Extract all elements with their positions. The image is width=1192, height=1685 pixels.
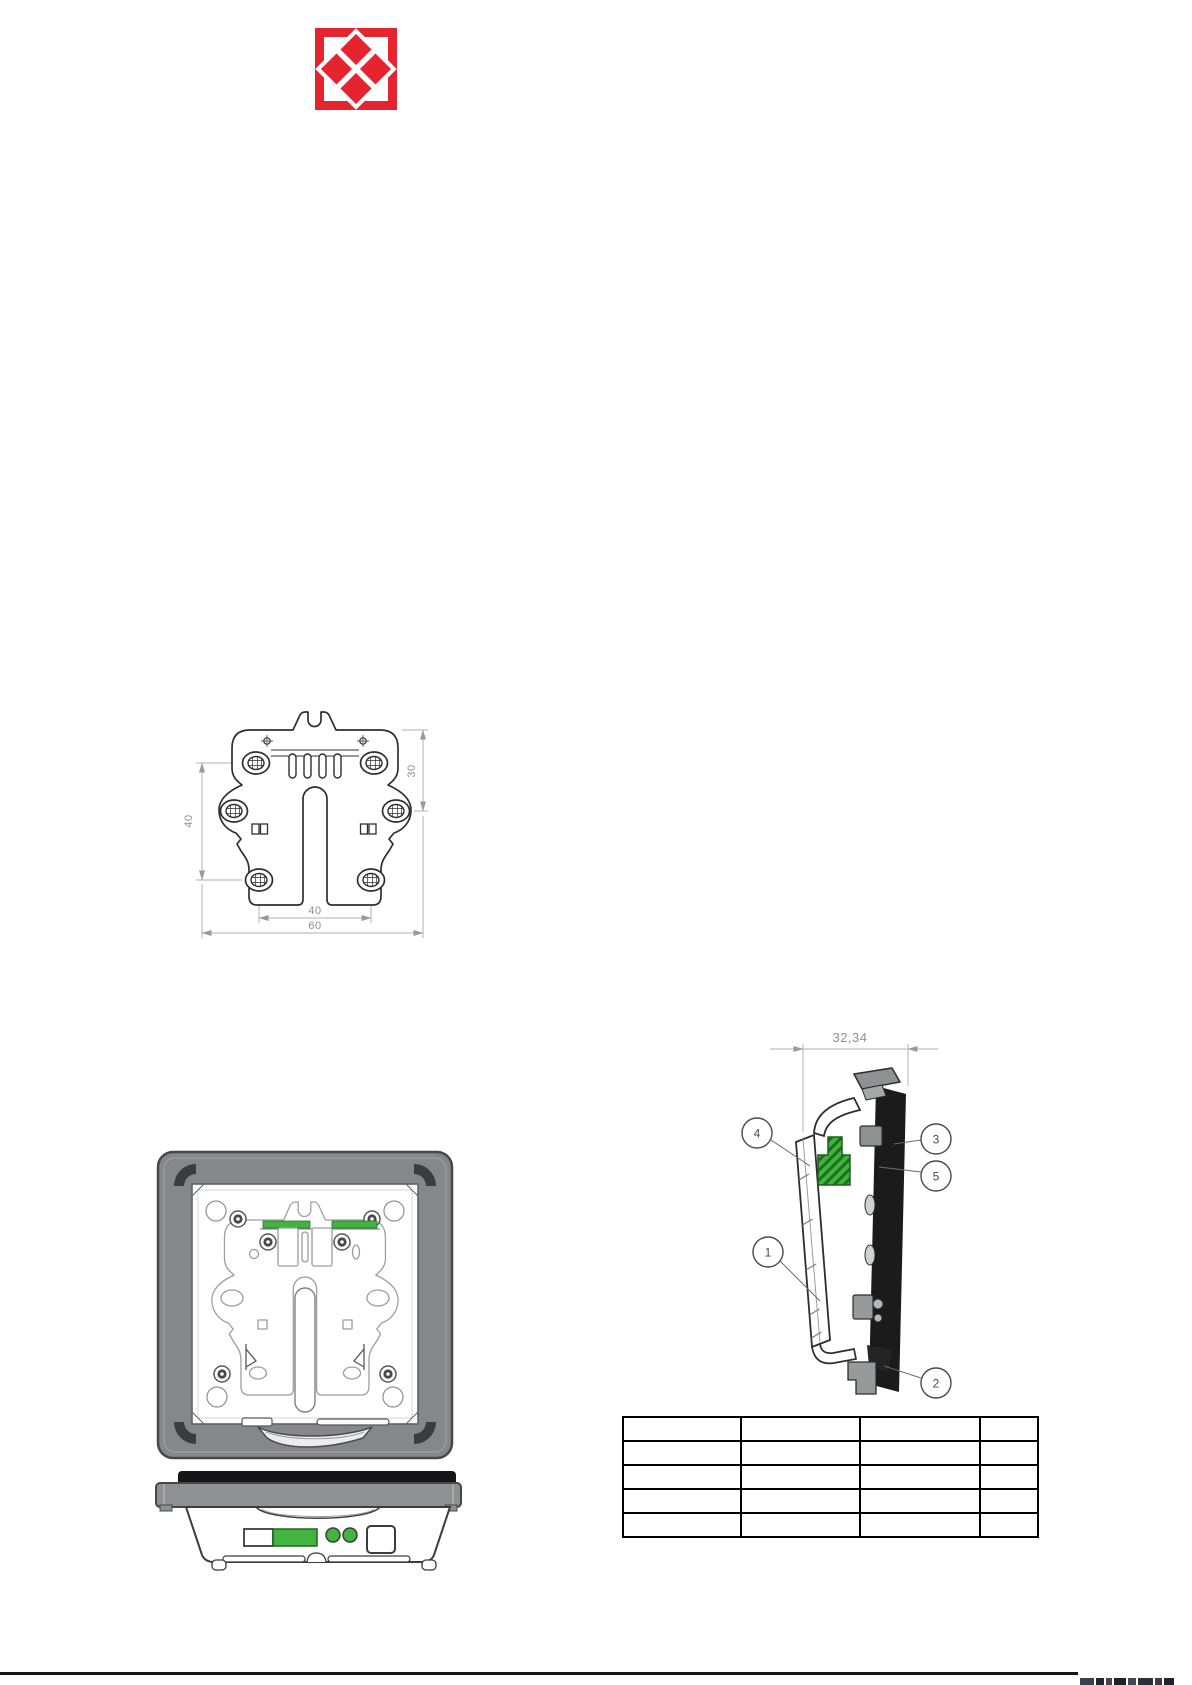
bracket-outline <box>219 712 411 905</box>
connector-socket <box>367 1526 395 1553</box>
table-cell <box>741 1441 860 1465</box>
led <box>343 1528 357 1542</box>
document-page: 40 30 40 60 <box>0 0 1192 1685</box>
mounting-hole <box>246 869 273 891</box>
led <box>326 1528 340 1542</box>
table-row <box>623 1489 1038 1513</box>
table-cell <box>623 1417 741 1441</box>
table-row <box>623 1417 1038 1441</box>
table-row <box>623 1513 1038 1537</box>
mounting-hole <box>383 800 410 822</box>
table-cell <box>741 1489 860 1513</box>
table-cell <box>623 1441 741 1465</box>
dim-label-bottom-outer: 60 <box>308 920 321 932</box>
table-cell <box>741 1465 860 1489</box>
logo-diamonds <box>318 31 394 107</box>
callout-2-label: 2 <box>933 1377 940 1391</box>
table-cell <box>623 1489 741 1513</box>
bezel-edge <box>156 1483 461 1507</box>
screw <box>260 1234 276 1250</box>
table-cell <box>741 1417 860 1441</box>
table-cell <box>980 1417 1038 1441</box>
keyhole <box>206 1201 226 1221</box>
clipped-footer-text <box>1080 1677 1192 1685</box>
mount-slot <box>221 1290 243 1306</box>
screw <box>334 1234 350 1250</box>
terminal-block <box>273 1529 317 1546</box>
housing-bottom-lip <box>812 1344 856 1363</box>
footer-rule <box>0 1672 1078 1675</box>
table-cell <box>980 1513 1038 1537</box>
company-logo <box>315 28 397 110</box>
table-cell <box>860 1441 980 1465</box>
housing-hook <box>814 1098 860 1136</box>
connector-section <box>853 1295 873 1319</box>
table-cell <box>980 1441 1038 1465</box>
mount-slot <box>367 1290 389 1306</box>
latch-tab <box>860 1126 882 1146</box>
dim-label-left: 40 <box>183 814 195 827</box>
bottom-slot <box>242 1418 272 1426</box>
callout-1-label: 1 <box>765 1246 772 1260</box>
parts-table <box>622 1416 1039 1538</box>
width-dimension <box>770 1044 938 1132</box>
device-bottom-view <box>150 1465 470 1580</box>
table-cell <box>860 1465 980 1489</box>
table-cell <box>623 1513 741 1537</box>
keyhole <box>383 1387 403 1407</box>
dim-label-bottom-inner: 40 <box>308 905 321 917</box>
mounting-hole <box>243 752 270 774</box>
callout-5-label: 5 <box>933 1170 940 1184</box>
table-cell <box>860 1489 980 1513</box>
bottom-feet <box>212 1553 436 1570</box>
green-contact-strip <box>332 1221 377 1228</box>
dim-label-width: 32,34 <box>832 1030 867 1045</box>
table-cell <box>741 1513 860 1537</box>
mounting-hole <box>221 800 248 822</box>
table-cell <box>980 1465 1038 1489</box>
device-side-section: 32,34 4 3 <box>670 1020 980 1420</box>
keyhole <box>384 1201 404 1221</box>
connector-slot <box>244 1529 273 1546</box>
table-cell <box>980 1489 1038 1513</box>
table-row <box>623 1465 1038 1489</box>
hinge-post <box>312 1228 332 1266</box>
hinge-post <box>278 1228 298 1266</box>
section-parts <box>796 1068 906 1394</box>
center-slot <box>295 1288 315 1412</box>
mounting-hole <box>361 752 388 774</box>
keyhole <box>207 1387 227 1407</box>
table-cell <box>623 1465 741 1489</box>
bottom-foot <box>848 1362 876 1394</box>
table-cell <box>860 1417 980 1441</box>
callout-3-label: 3 <box>933 1133 940 1147</box>
screw <box>214 1366 230 1382</box>
screw <box>230 1211 246 1227</box>
device-rear-view <box>150 1140 460 1470</box>
green-contact-strip <box>263 1221 310 1228</box>
callout-4-label: 4 <box>754 1127 761 1141</box>
table-cell <box>860 1513 980 1537</box>
dim-label-right: 30 <box>406 764 418 777</box>
table-row <box>623 1441 1038 1465</box>
bracket-dimension-drawing: 40 30 40 60 <box>180 650 440 950</box>
screw <box>380 1366 396 1382</box>
mounting-hole <box>358 869 385 891</box>
green-gasket-section <box>818 1137 850 1185</box>
bottom-slot <box>317 1419 389 1425</box>
